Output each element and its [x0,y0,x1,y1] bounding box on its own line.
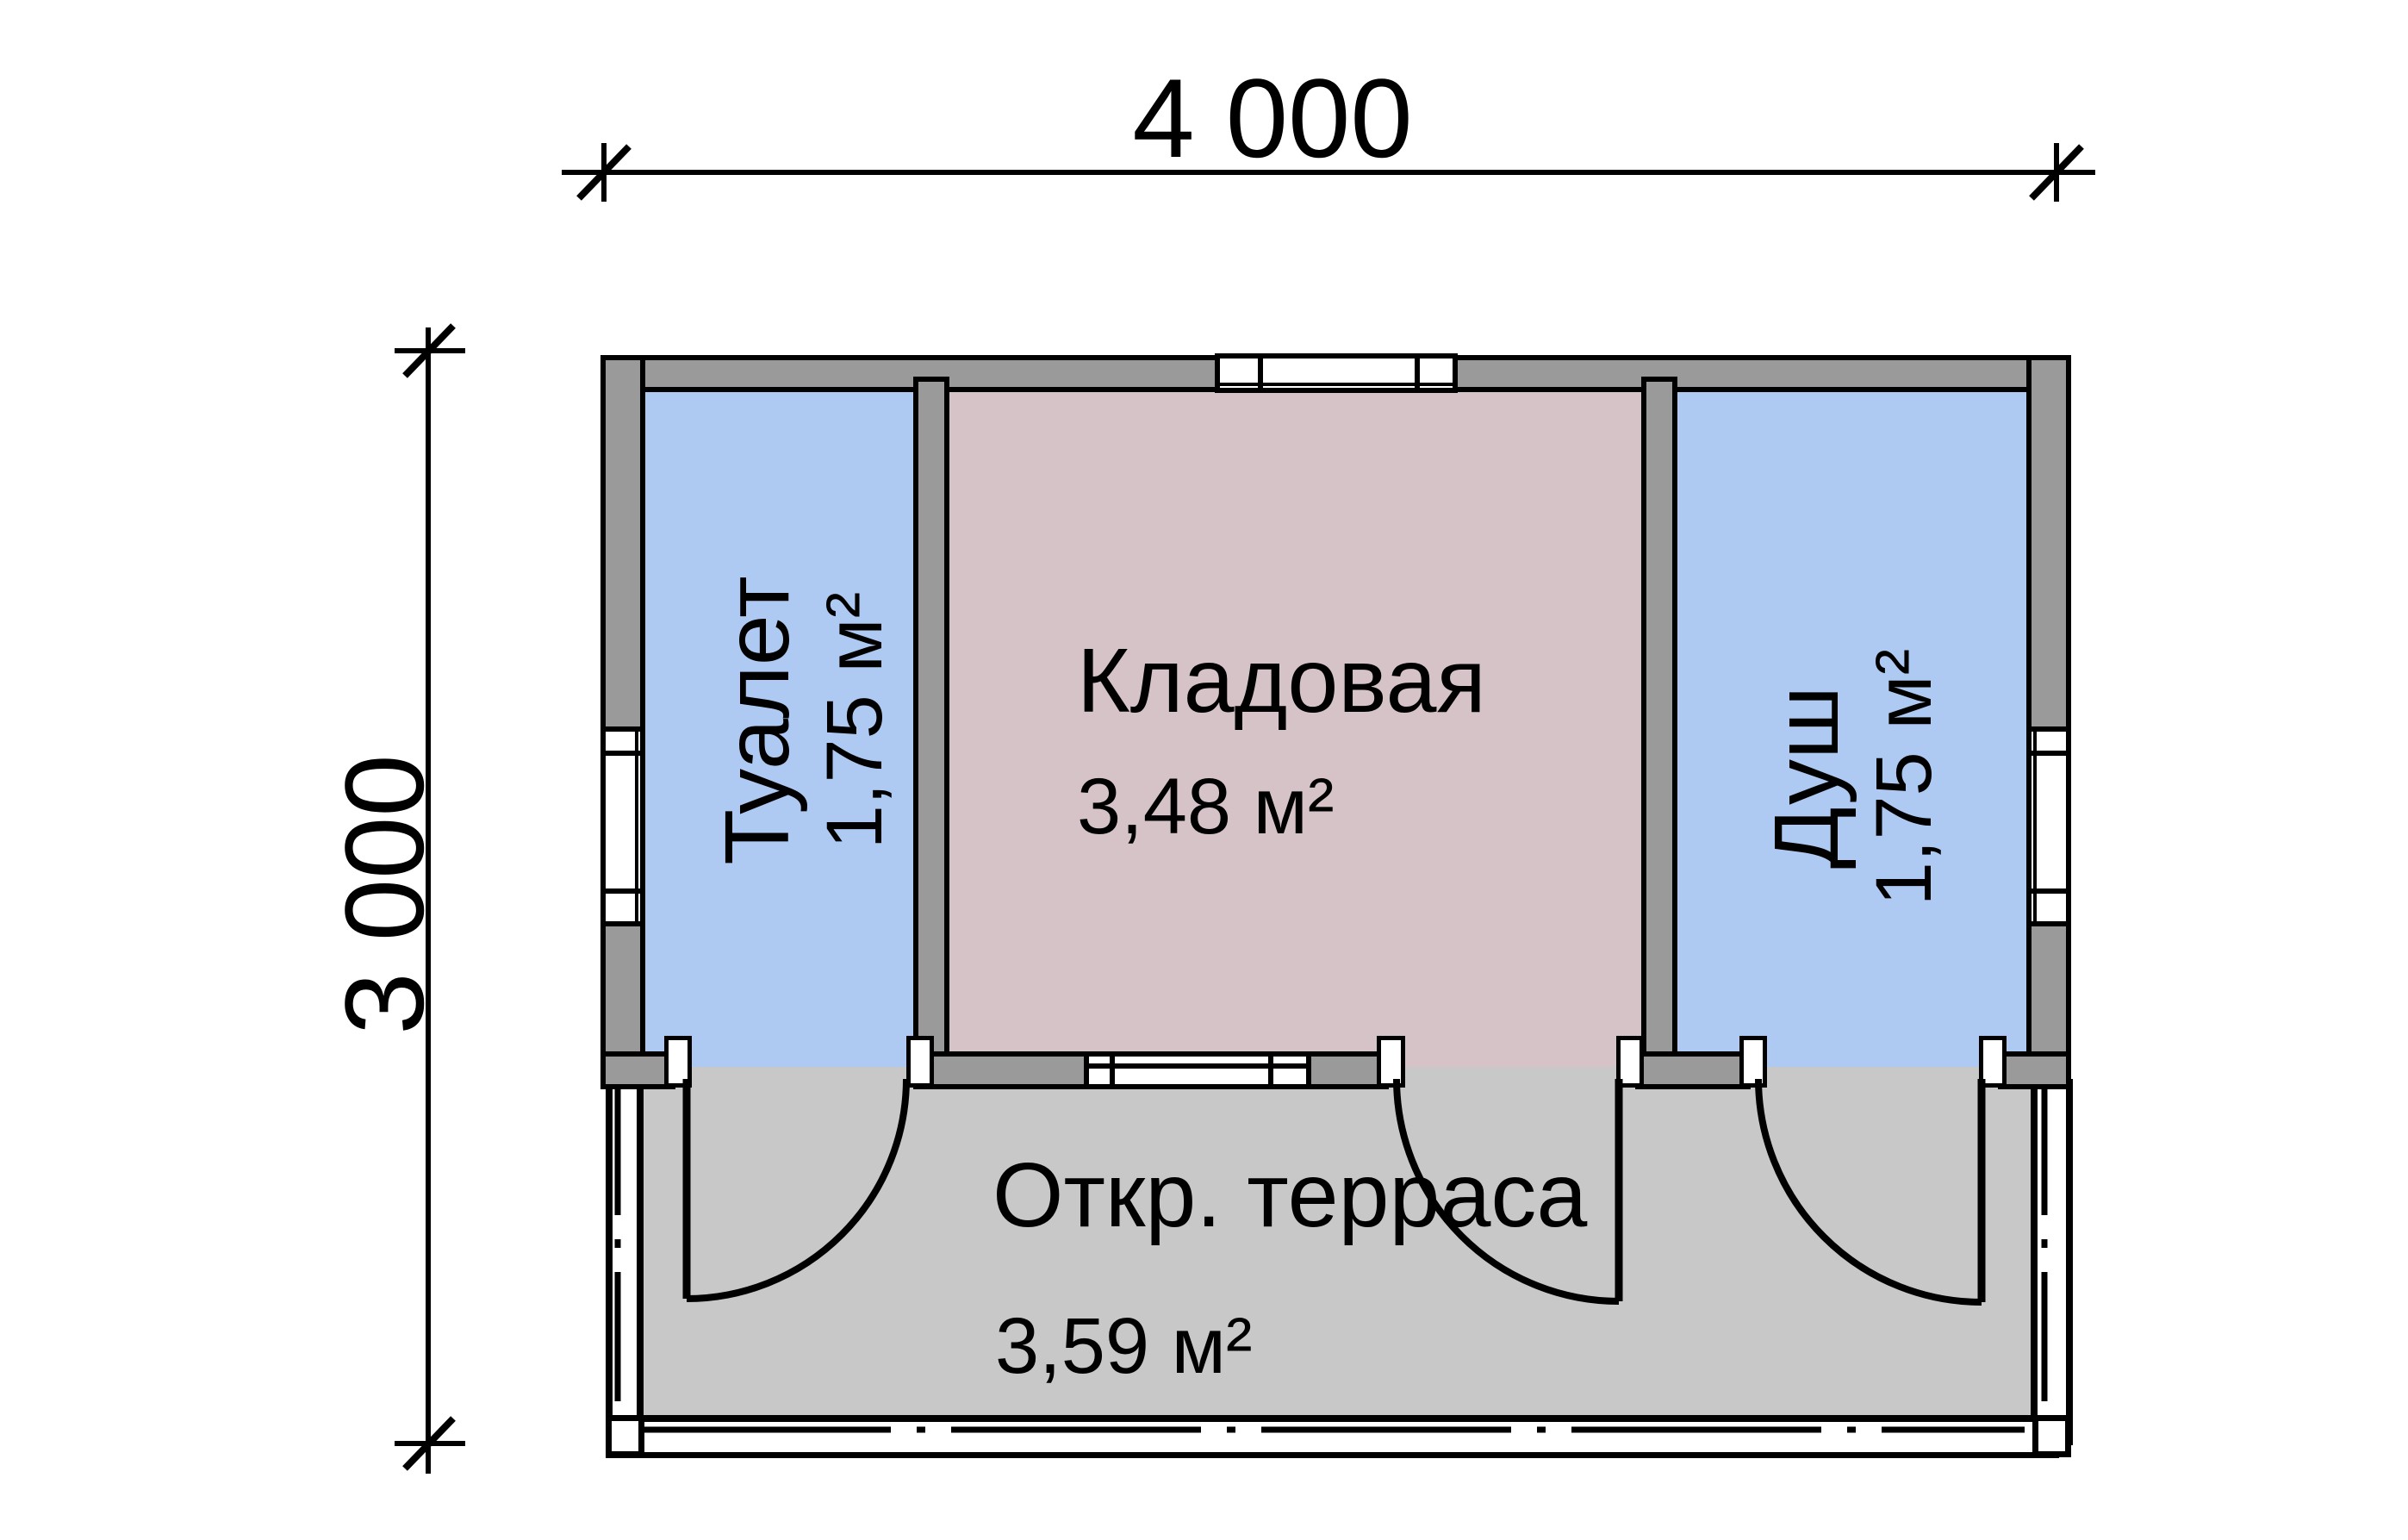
room-label-terrace: Откр. терраса [992,1150,1587,1241]
room-name: Душ [1761,649,1852,907]
dimension-label-height: 3 000 [328,754,440,1034]
room-area: 1,75 м² [815,576,894,864]
room-area: 1,75 м² [1864,649,1944,907]
dimension-label-width: 4 000 [1014,62,1531,174]
room-label-toilet: Туалет 1,75 м² [712,576,894,864]
room-name: Туалет [712,576,803,864]
room-area-terrace: 3,59 м² [995,1306,1253,1386]
door-arc-shower [1758,1079,1982,1302]
room-label-storage: Кладовая [1077,635,1486,726]
door-arc-toilet [687,1079,906,1299]
room-label-shower: Душ 1,75 м² [1761,649,1944,907]
room-area-storage: 3,48 м² [1077,767,1335,846]
floor-plan-canvas: 4 000 3 000 Туалет 1,75 м² Кладовая 3,48… [0,0,2408,1540]
